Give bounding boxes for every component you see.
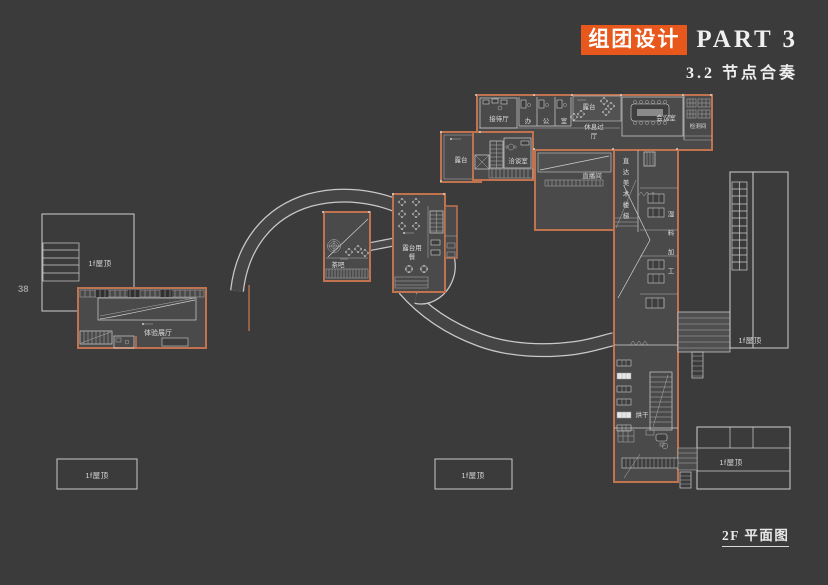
exhibition-label: 体验展厅 <box>144 328 172 337</box>
east-roof-tall-label: 1f屋顶 <box>738 336 761 345</box>
east-roof-wide-label: 1f屋顶 <box>719 458 742 467</box>
building-workshop: 直 达 美 术 楼 梯 湿 料 加 工 <box>614 150 680 482</box>
building-exhibition: 体验展厅 <box>78 288 206 348</box>
svg-text:梯: 梯 <box>623 211 630 220</box>
svg-text:楼: 楼 <box>623 200 630 209</box>
svg-text:工: 工 <box>668 268 675 275</box>
dining-label-1: 露台用 <box>402 243 422 252</box>
office-char-2: 公 <box>543 118 550 125</box>
office-char-1: 办 <box>525 116 532 125</box>
terrace-top: 露台 <box>573 96 621 121</box>
east-roof-wide: 1f屋顶 <box>678 427 790 489</box>
svg-text:达: 达 <box>623 167 630 176</box>
office-char-3: 室 <box>561 116 568 125</box>
east-roof-tall: 1f屋顶 <box>730 172 788 348</box>
floor-plan: 1f屋顶 体验展厅 <box>0 0 828 585</box>
building-tea-bar: 茶吧 <box>324 212 370 281</box>
rest-hall-label-1: 休息过 <box>584 122 604 131</box>
svg-text:料: 料 <box>668 228 675 237</box>
roof-box-middle: 1f屋顶 <box>435 459 512 489</box>
bridge-east <box>678 312 730 378</box>
drying-label: 烘干 <box>636 410 650 419</box>
dining-label-2: 餐 <box>409 252 416 261</box>
roof-box-middle-label: 1f屋顶 <box>461 471 484 480</box>
negotiation-label: 洽谈室 <box>508 156 528 165</box>
wing-negotiation: 洽谈室 <box>473 132 533 180</box>
svg-text:美: 美 <box>623 178 630 187</box>
terrace-left-label: 露台 <box>455 155 468 164</box>
roof-box-left: 1f屋顶 <box>57 459 137 489</box>
meeting-label: 会议室 <box>656 113 676 122</box>
reception-label: 接待厅 <box>489 114 509 123</box>
svg-text:直: 直 <box>623 156 630 165</box>
svg-text:加: 加 <box>668 247 675 256</box>
spiral-stair <box>328 240 341 253</box>
left-roof-label: 1f屋顶 <box>88 259 111 268</box>
testing-label: 检测间 <box>690 122 707 130</box>
svg-text:湿: 湿 <box>668 209 675 218</box>
building-studio: 直播间 <box>535 150 614 230</box>
terrace-top-label: 露台 <box>583 102 596 111</box>
slide: 组团设计 PART 3 3.2 节点合奏 38 2F 平面图 <box>0 0 828 585</box>
tea-bar-label: 茶吧 <box>332 260 346 269</box>
studio-label: 直播间 <box>582 171 602 180</box>
rest-hall-label-2: 厅 <box>591 132 598 140</box>
roof-box-left-label: 1f屋顶 <box>85 471 108 480</box>
bridge-tea-dining <box>368 242 394 247</box>
